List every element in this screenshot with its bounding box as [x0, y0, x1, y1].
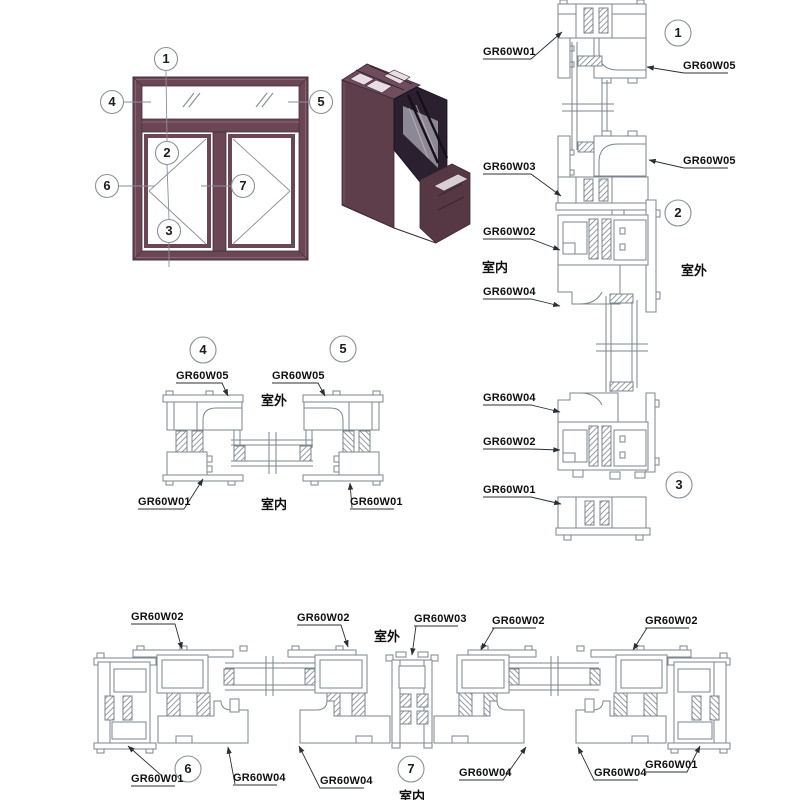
part-label: GR60W05 — [683, 60, 736, 72]
callout-number: 3 — [675, 477, 682, 492]
part-label: GR60W05 — [683, 155, 736, 167]
room-label-indoor: 室内 — [399, 786, 425, 800]
callout-number: 4 — [199, 342, 206, 357]
part-label: GR60W04 — [483, 392, 536, 404]
callout-number: 5 — [317, 94, 324, 109]
callout-number: 2 — [163, 145, 170, 160]
part-label: GR60W01 — [131, 773, 184, 785]
room-label-outdoor: 室外 — [681, 260, 707, 279]
callout-number: 7 — [407, 761, 414, 776]
room-label-outdoor: 室外 — [374, 626, 400, 645]
part-label: GR60W01 — [645, 759, 698, 771]
callout-number: 7 — [239, 178, 246, 193]
profile-3d-sample — [342, 64, 470, 243]
callout-number: 6 — [103, 178, 110, 193]
part-label: GR60W05 — [176, 370, 229, 382]
part-label: GR60W02 — [483, 436, 536, 448]
jamb-sections — [163, 336, 383, 485]
room-label-indoor: 室内 — [261, 494, 287, 513]
callout-number: 1 — [162, 51, 169, 66]
part-label: GR60W02 — [297, 612, 350, 624]
part-label: GR60W05 — [272, 370, 325, 382]
room-label-indoor: 室内 — [482, 257, 508, 276]
part-label: GR60W02 — [492, 615, 545, 627]
callout-number: 4 — [108, 94, 115, 109]
part-label: GR60W02 — [645, 615, 698, 627]
part-label: GR60W03 — [414, 613, 467, 625]
part-label: GR60W01 — [483, 46, 536, 58]
window-elevation-drawing — [96, 48, 333, 268]
vertical-sections — [556, 0, 692, 540]
part-label: GR60W02 — [131, 611, 184, 623]
part-label: GR60W03 — [483, 161, 536, 173]
room-label-outdoor: 室外 — [261, 390, 287, 409]
part-label: GR60W04 — [483, 286, 536, 298]
part-label: GR60W01 — [138, 496, 191, 508]
part-label: GR60W04 — [459, 767, 512, 779]
part-label: GR60W04 — [594, 767, 647, 779]
callout-number: 3 — [165, 223, 172, 238]
part-label: GR60W04 — [233, 772, 286, 784]
part-label: GR60W01 — [350, 496, 403, 508]
callout-number: 1 — [674, 25, 681, 40]
part-label: GR60W01 — [483, 484, 536, 496]
part-label: GR60W02 — [483, 226, 536, 238]
callout-number: 6 — [184, 761, 191, 776]
line-art — [0, 0, 800, 800]
callout-number: 5 — [339, 341, 346, 356]
technical-drawing-canvas: 1 4 5 2 6 7 3 1 2 3 4 5 6 7 GR60W01 GR60… — [0, 0, 800, 800]
callout-number: 2 — [674, 205, 681, 220]
part-label: GR60W04 — [320, 775, 373, 787]
